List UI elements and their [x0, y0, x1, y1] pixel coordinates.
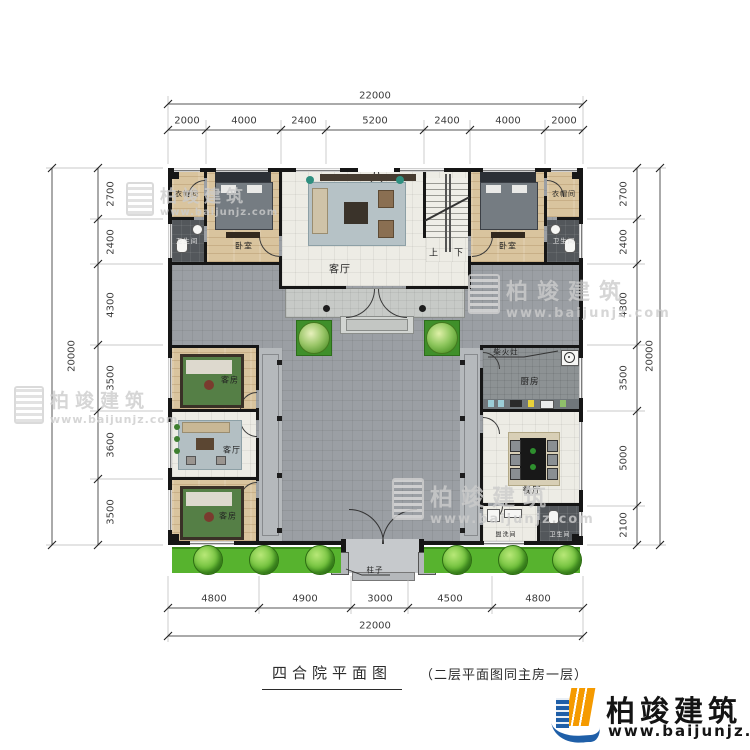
firewood-stove-dot [568, 356, 570, 358]
gate-threshold [352, 572, 415, 581]
label-cloakroom-ne: 衣帽间 [552, 189, 576, 199]
drawing-subtitle: （二层平面图同主房一层） [420, 664, 588, 683]
dim-left-seg: 2400 [106, 229, 117, 254]
label-dining: 餐厅 [522, 484, 541, 496]
window [168, 422, 172, 468]
dining-plant [530, 464, 536, 470]
tree [552, 545, 582, 575]
wall [168, 262, 281, 265]
wall [468, 168, 471, 236]
hall-sofa [312, 188, 328, 234]
sink [192, 224, 203, 235]
wall [504, 503, 583, 506]
bed [215, 172, 271, 182]
wall [168, 217, 194, 220]
dining-chair [510, 468, 521, 480]
wall [279, 286, 346, 289]
west-living-stool [186, 456, 196, 465]
dim-right-seg: 2700 [619, 181, 630, 206]
wall [544, 168, 547, 178]
kitchen-appliance [498, 400, 504, 407]
porch-column [323, 305, 330, 312]
tree [249, 545, 279, 575]
veranda-post [277, 360, 282, 365]
porch-column [419, 305, 426, 312]
watermark-building-icon [14, 386, 44, 424]
dim-top-seg: 2000 [174, 116, 199, 127]
dim-top-seg: 2400 [291, 116, 316, 127]
west-living-stool [216, 456, 226, 465]
planter-tree [298, 322, 330, 354]
washing-machine [487, 509, 500, 522]
wall [256, 498, 259, 545]
wall [204, 242, 207, 262]
window [579, 422, 583, 490]
label-bathroom-ne: 卫生间 [553, 235, 576, 245]
dim-top-total: 22000 [359, 91, 391, 102]
label-stairs-down: 下 [454, 246, 464, 259]
dim-left-total: 20000 [67, 340, 78, 372]
pillow [247, 185, 262, 193]
label-living-west: 客厅 [223, 445, 241, 456]
dim-bottom-total: 22000 [359, 621, 391, 632]
window [484, 541, 524, 545]
toilet [548, 510, 559, 524]
plant [174, 436, 180, 442]
tree [305, 545, 335, 575]
label-bathroom-nw: 卫生间 [176, 235, 199, 245]
dining-table [520, 438, 546, 480]
wall [480, 433, 483, 509]
label-pillar: 柱子 [367, 565, 384, 576]
wall [480, 345, 483, 350]
label-cloakroom-nw: 衣帽间 [175, 189, 199, 199]
label-bedroom-nw: 卧室 [235, 241, 253, 252]
brand-logo-icon [552, 686, 602, 740]
wall [256, 345, 259, 390]
wall [470, 262, 583, 265]
dim-top-seg: 4000 [495, 116, 520, 127]
dining-plant [530, 448, 536, 454]
tree [442, 545, 472, 575]
wall [168, 409, 259, 412]
wall [557, 217, 583, 220]
bed [480, 172, 536, 182]
wall-corner [168, 534, 179, 545]
sink [550, 224, 561, 235]
label-kitchen: 厨房 [520, 375, 539, 387]
wall [168, 477, 259, 480]
wall [468, 256, 471, 288]
kitchen-sink [540, 400, 554, 409]
wall [256, 408, 259, 420]
wall [279, 256, 282, 288]
dining-chair [547, 468, 558, 480]
guest-bed-sheet [186, 360, 232, 374]
dim-right-seg: 4300 [619, 292, 630, 317]
brand-url: www.baijunjz.com [608, 722, 750, 740]
hall-armchair [378, 190, 394, 208]
wall [480, 409, 583, 412]
dim-right-seg: 2400 [619, 229, 630, 254]
label-stove: 柴火灶 [493, 347, 519, 358]
main-hall-porch [285, 288, 465, 318]
label-main-hall: 客厅 [329, 261, 351, 276]
dining-chair [547, 440, 558, 452]
guest-bed-sheet [186, 492, 232, 506]
logo-blue-swoosh [551, 718, 600, 744]
kitchen-stovetop [510, 400, 522, 407]
wall [537, 520, 540, 545]
stair-rail [445, 174, 447, 252]
dim-right-total: 20000 [645, 340, 656, 372]
window [400, 168, 444, 172]
tree [498, 545, 528, 575]
watermark: 柏竣建筑 www.baijunjz.com [14, 386, 178, 426]
wall [544, 196, 547, 226]
hall-armchair [378, 220, 394, 238]
dim-top-seg: 2000 [551, 116, 576, 127]
porch-steps-inner [346, 319, 408, 331]
dim-bottom-seg: 4900 [292, 594, 317, 605]
plant [174, 448, 180, 454]
window [174, 168, 200, 172]
watermark-building-icon [126, 182, 154, 216]
pillow [512, 185, 527, 193]
stair-rail [449, 174, 451, 252]
window [168, 224, 172, 258]
wall [279, 168, 282, 236]
dim-right-seg: 5000 [619, 445, 630, 470]
basin [504, 509, 522, 518]
west-veranda-outline [262, 354, 279, 536]
label-bedroom-ne: 卧室 [499, 241, 517, 252]
dim-top-seg: 2400 [434, 116, 459, 127]
window [551, 168, 577, 172]
veranda-post [460, 360, 465, 365]
dim-left-seg: 3600 [106, 432, 117, 457]
west-living-sofa [182, 422, 230, 433]
dim-left-seg: 3500 [106, 499, 117, 524]
veranda-post [460, 528, 465, 533]
east-veranda-outline [464, 354, 478, 536]
dim-bottom-seg: 3000 [367, 594, 392, 605]
window [579, 512, 583, 536]
pillow [486, 185, 501, 193]
window [168, 358, 172, 398]
dim-right-seg: 3500 [619, 365, 630, 390]
veranda-post [460, 416, 465, 421]
dining-chair [547, 454, 558, 466]
label-guest-w1: 客房 [221, 375, 239, 386]
window [579, 358, 583, 398]
label-guest-w2: 客房 [219, 511, 237, 522]
plant [306, 176, 314, 184]
veranda-post [277, 473, 282, 478]
dim-bottom-seg: 4800 [525, 594, 550, 605]
wall [406, 286, 471, 289]
veranda-post [460, 473, 465, 478]
veranda-post [277, 528, 282, 533]
plant [174, 424, 180, 430]
floor-plan-sheet: 衣帽间 卫生间 卧室 客厅 上 下 卧室 衣帽间 卫生间 客房 客厅 客房 柴火… [0, 0, 750, 750]
wall [204, 196, 207, 226]
dim-left-seg: 3500 [106, 365, 117, 390]
window [579, 224, 583, 258]
wall [256, 438, 259, 481]
window [168, 490, 172, 530]
planter-tree [426, 322, 458, 354]
bed-bench [226, 232, 260, 238]
watermark-url: www.baijunjz.com [50, 413, 178, 426]
dim-top-seg: 4000 [231, 116, 256, 127]
label-stairs-up: 上 [429, 246, 439, 259]
window [190, 541, 234, 545]
dim-right-seg: 2100 [619, 512, 630, 537]
plant [396, 176, 404, 184]
dim-bottom-seg: 4500 [437, 594, 462, 605]
bed-bench [491, 232, 525, 238]
drawing-title: 四合院平面图 [262, 662, 402, 690]
dining-chair [510, 454, 521, 466]
veranda-post [277, 416, 282, 421]
pillow [221, 185, 236, 193]
west-living-table [196, 438, 214, 450]
wall [204, 168, 207, 178]
dim-top-seg: 5200 [362, 116, 387, 127]
dim-left-seg: 2700 [106, 181, 117, 206]
label-bathroom-se: 卫生间 [549, 530, 570, 539]
guest-bed-emblem [204, 380, 214, 390]
dim-left-seg: 4300 [106, 292, 117, 317]
hall-table [344, 202, 368, 224]
label-wash: 盥洗间 [495, 530, 516, 539]
guest-bed-emblem [204, 512, 214, 522]
kitchen-appliance [528, 400, 534, 407]
wall [480, 525, 483, 545]
dining-chair [510, 440, 521, 452]
dim-bottom-seg: 4800 [201, 594, 226, 605]
kitchen-appliance [488, 400, 494, 407]
window [296, 168, 340, 172]
wall [168, 345, 259, 348]
building-plan: 衣帽间 卫生间 卧室 客厅 上 下 卧室 衣帽间 卫生间 客房 客厅 客房 柴火… [168, 168, 583, 545]
kitchen-appliance [560, 400, 566, 407]
wall [544, 242, 547, 262]
tree [193, 545, 223, 575]
